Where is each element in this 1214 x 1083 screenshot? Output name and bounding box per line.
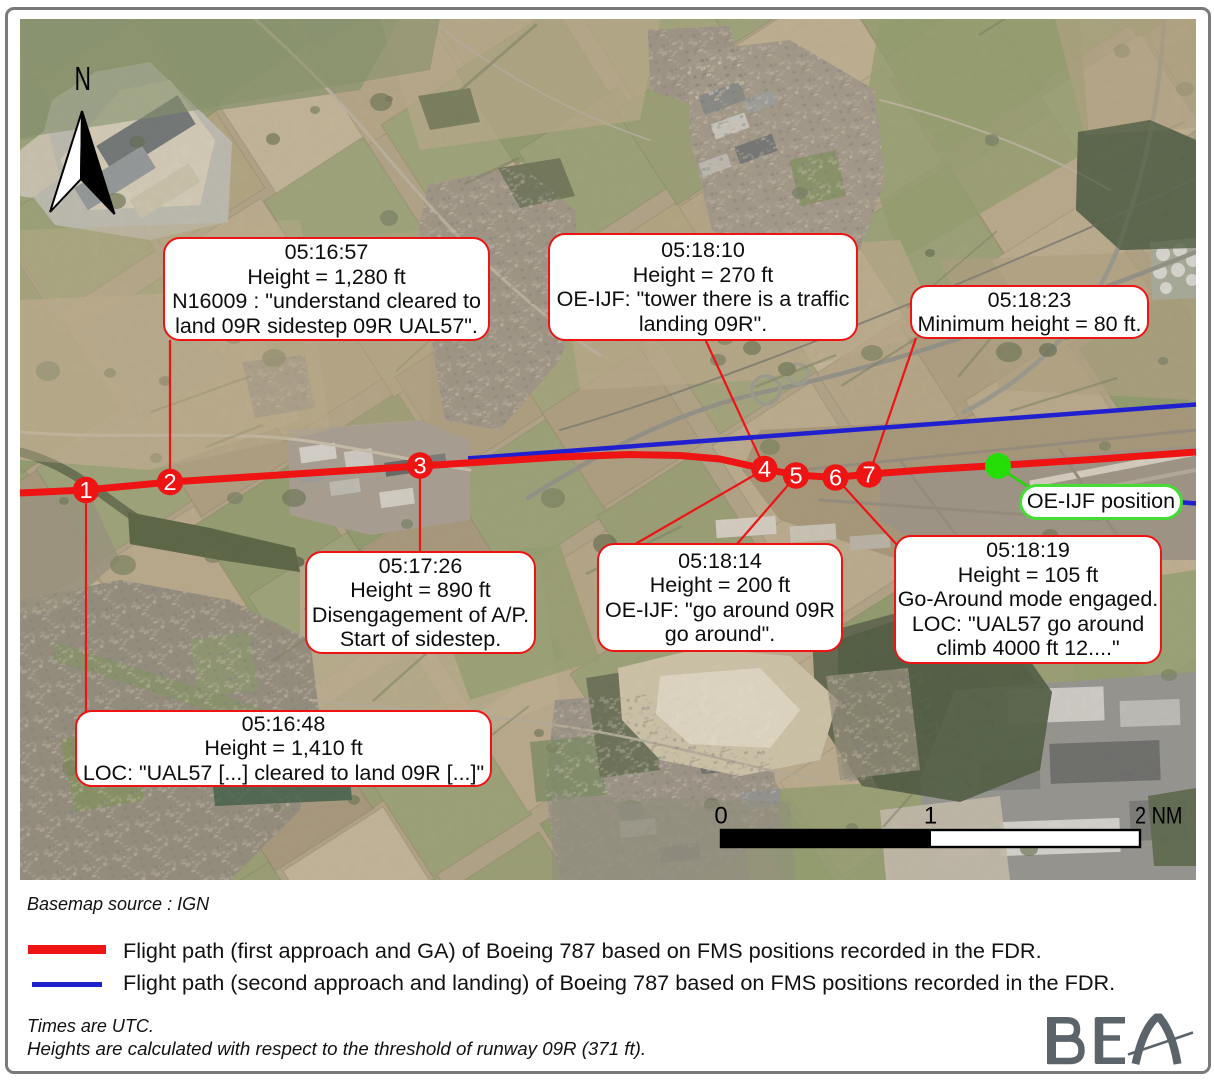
svg-text:2 NM: 2 NM <box>1135 803 1183 830</box>
svg-text:1: 1 <box>924 803 937 830</box>
svg-text:7: 7 <box>862 462 875 488</box>
svg-text:6: 6 <box>829 465 842 491</box>
svg-text:1: 1 <box>79 477 92 503</box>
svg-text:N: N <box>75 60 92 97</box>
svg-text:4: 4 <box>758 456 771 482</box>
svg-text:2: 2 <box>163 469 176 495</box>
svg-text:5: 5 <box>789 463 802 489</box>
svg-text:3: 3 <box>413 453 426 479</box>
svg-text:0: 0 <box>714 803 727 830</box>
